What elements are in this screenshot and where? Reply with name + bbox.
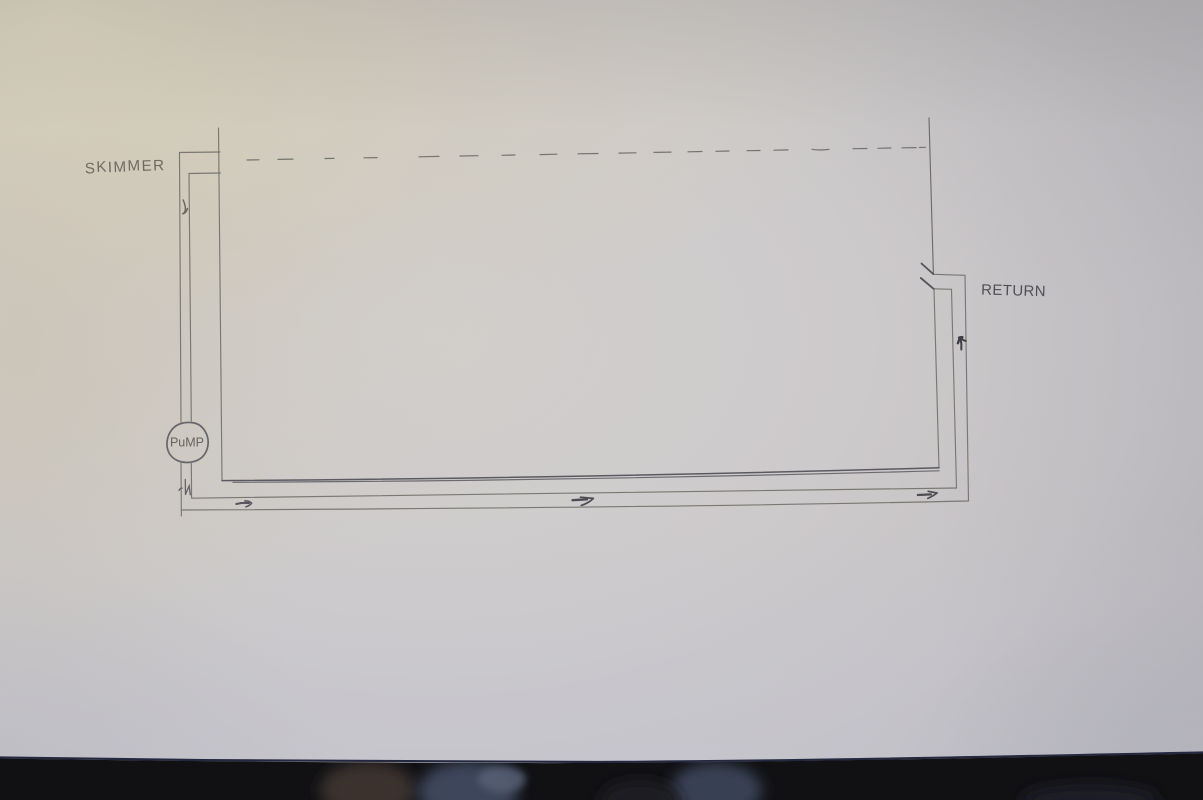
svg-text:RETURN: RETURN — [981, 282, 1046, 301]
svg-text:SKIMMER: SKIMMER — [84, 156, 165, 177]
svg-text:PuMP: PuMP — [170, 436, 204, 450]
